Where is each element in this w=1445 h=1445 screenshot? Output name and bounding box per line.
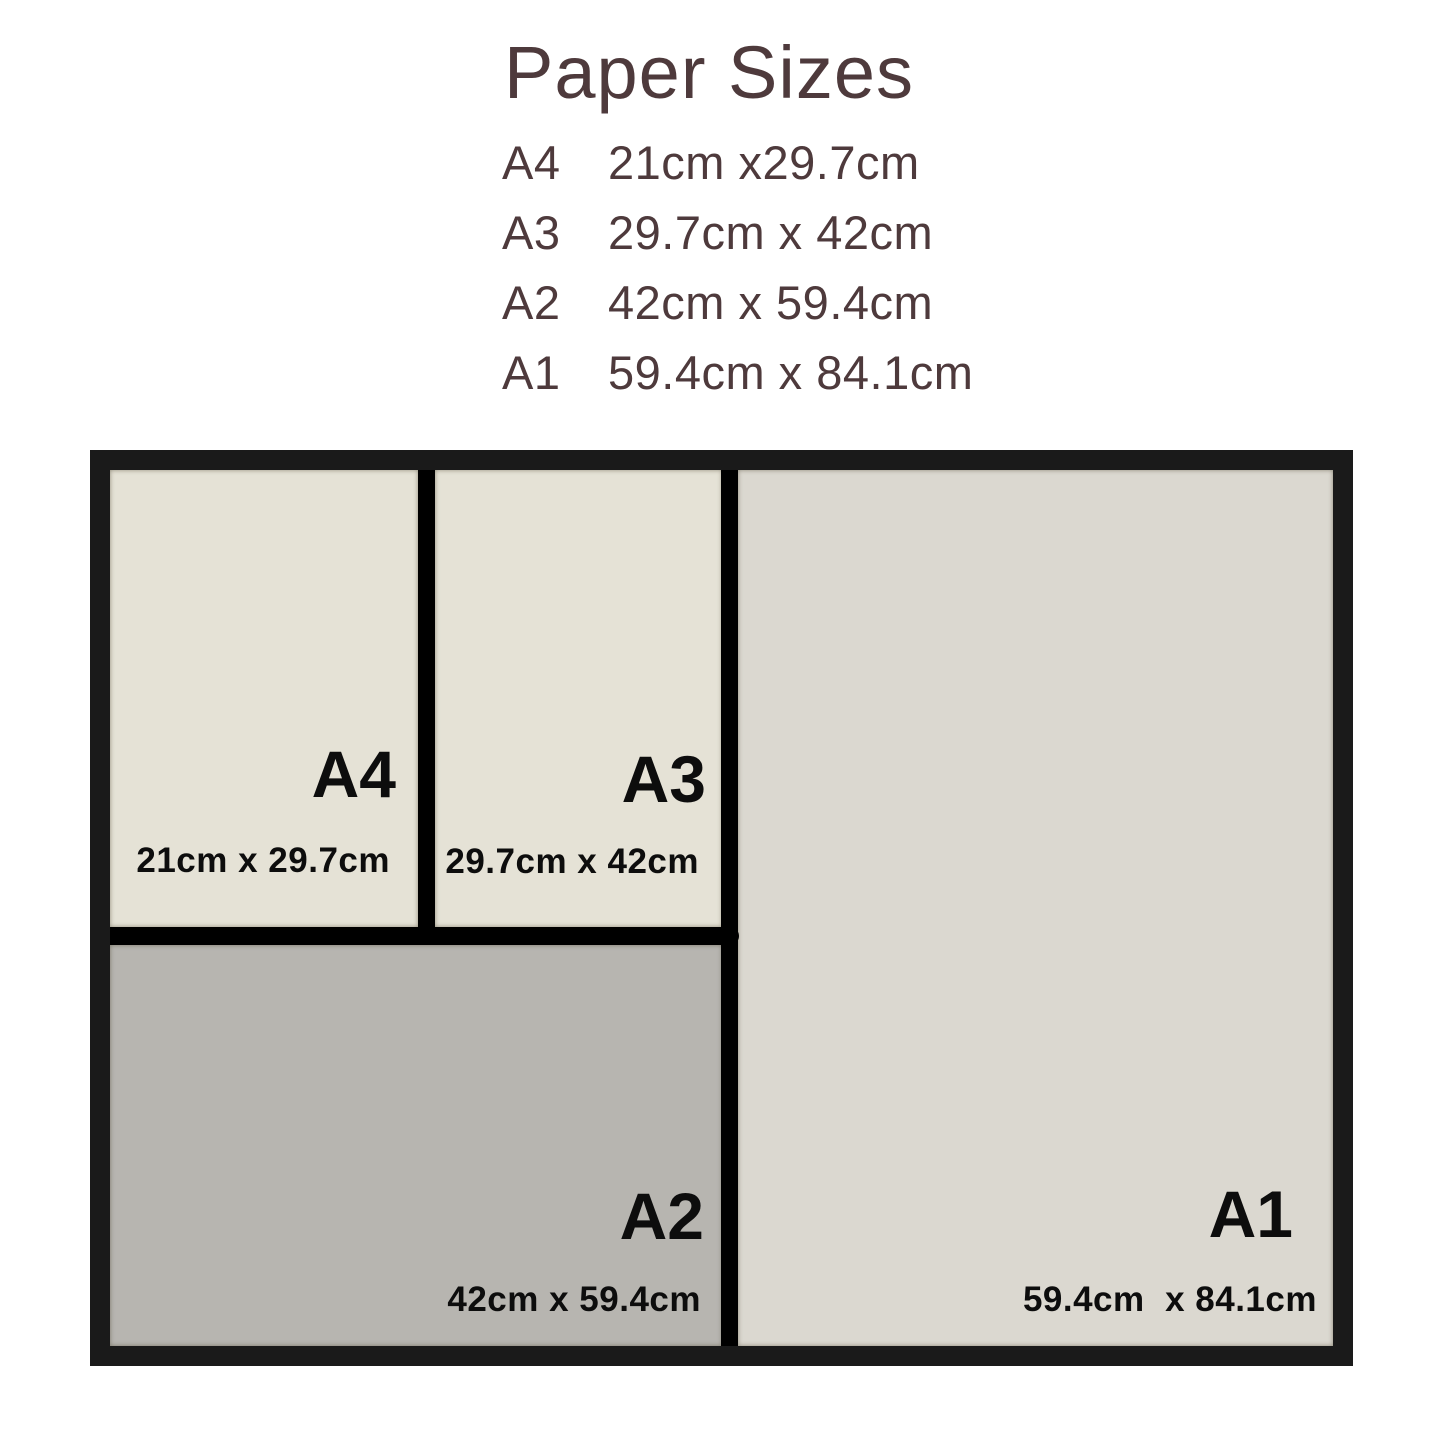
paper-a3: A3 29.7cm x 42cm [435, 470, 722, 927]
list-item: A4 21cm x29.7cm [502, 127, 973, 197]
paper-sizes-diagram: A4 21cm x 29.7cm A3 29.7cm x 42cm A1 59.… [90, 450, 1353, 1366]
list-item: A2 42cm x 59.4cm [502, 267, 973, 337]
paper-a1: A1 59.4cm x 84.1cm [738, 470, 1333, 1346]
divider-a4-a3 [418, 470, 435, 945]
divider-a4a3-a2 [110, 927, 739, 945]
list-item-dims: 29.7cm x 42cm [608, 205, 933, 260]
page-title: Paper Sizes [504, 30, 914, 115]
divider-a3-a1 [721, 470, 738, 1346]
paper-a2: A2 42cm x 59.4cm [110, 945, 722, 1346]
paper-a4-dimensions: 21cm x 29.7cm [136, 843, 390, 878]
list-item-dims: 59.4cm x 84.1cm [608, 345, 973, 400]
paper-a1-label: A1 [1209, 1181, 1293, 1247]
paper-a3-dimensions: 29.7cm x 42cm [445, 844, 699, 879]
list-item: A1 59.4cm x 84.1cm [502, 337, 973, 407]
list-item-size: A2 [502, 275, 608, 330]
list-item-dims: 21cm x29.7cm [608, 135, 920, 190]
paper-a1-dimensions: 59.4cm x 84.1cm [1023, 1282, 1317, 1317]
list-item: A3 29.7cm x 42cm [502, 197, 973, 267]
paper-a3-label: A3 [622, 746, 706, 812]
paper-a2-label: A2 [620, 1183, 704, 1249]
paper-a2-dimensions: 42cm x 59.4cm [447, 1282, 701, 1317]
list-item-size: A1 [502, 345, 608, 400]
paper-a4-label: A4 [312, 741, 396, 807]
paper-a4: A4 21cm x 29.7cm [110, 470, 418, 927]
list-item-dims: 42cm x 59.4cm [608, 275, 933, 330]
paper-size-list: A4 21cm x29.7cm A3 29.7cm x 42cm A2 42cm… [502, 127, 973, 407]
list-item-size: A3 [502, 205, 608, 260]
diagram-inner-area: A4 21cm x 29.7cm A3 29.7cm x 42cm A1 59.… [110, 470, 1333, 1346]
list-item-size: A4 [502, 135, 608, 190]
